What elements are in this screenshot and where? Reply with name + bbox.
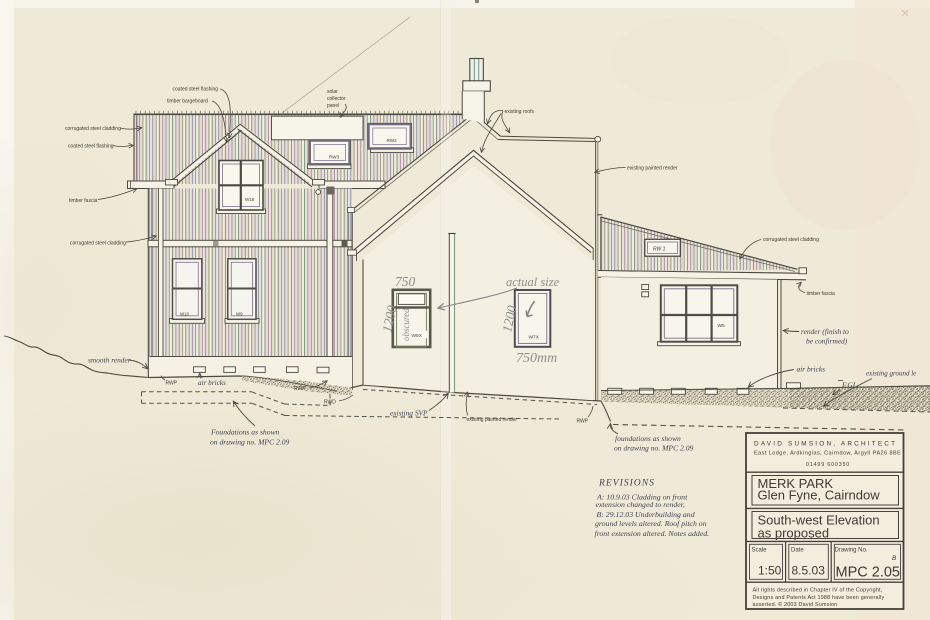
svg-text:RWP: RWP	[294, 386, 306, 392]
svg-text:RWD: RWD	[324, 400, 336, 406]
svg-text:extension changed to render,: extension changed to render,	[596, 500, 685, 509]
svg-text:750mm: 750mm	[516, 351, 557, 366]
svg-text:as proposed: as proposed	[758, 526, 830, 541]
svg-text:01499 600350: 01499 600350	[806, 462, 850, 468]
svg-text:panel: panel	[327, 103, 339, 109]
svg-text:corrugated steel cladding: corrugated steel cladding	[70, 241, 126, 247]
svg-text:existing ground le: existing ground le	[866, 370, 916, 378]
svg-text:W9: W9	[236, 312, 243, 317]
svg-text:RWP: RWP	[577, 419, 589, 425]
svg-text:Scale: Scale	[752, 548, 768, 554]
svg-text:existing SVP: existing SVP	[390, 409, 428, 418]
svg-text:F.GL: F.GL	[841, 381, 857, 390]
svg-text:Date: Date	[791, 548, 804, 554]
svg-text:RW3: RW3	[329, 155, 340, 160]
svg-text:B: B	[892, 555, 897, 562]
svg-text:coated steel flashing: coated steel flashing	[173, 87, 219, 93]
svg-text:ground levels altered. Roof pi: ground levels altered. Roof pitch on	[595, 519, 707, 528]
svg-text:solar: solar	[327, 89, 338, 95]
svg-text:collector: collector	[327, 96, 346, 102]
svg-text:W18: W18	[245, 197, 255, 202]
svg-text:existing painted render: existing painted render	[627, 166, 678, 172]
svg-text:Drawing No.: Drawing No.	[835, 548, 868, 554]
svg-text:8.5.03: 8.5.03	[792, 564, 826, 578]
svg-text:obscured: obscured	[401, 308, 411, 341]
svg-text:RW2: RW2	[387, 138, 398, 143]
svg-text:asserted. © 2: asserted. © 2003 David Sumsion	[753, 601, 838, 608]
svg-text:B: 29.12.03 Underbuilding and: B: 29.12.03 Underbuilding and	[597, 510, 695, 519]
svg-text:1:50: 1:50	[758, 564, 782, 578]
svg-text:W10: W10	[180, 312, 190, 317]
svg-text:corrugated steel cladding: corrugated steel cladding	[65, 126, 121, 132]
svg-text:MPC 2.05: MPC 2.05	[836, 565, 900, 581]
svg-text:coated steel flashing: coated steel flashing	[68, 144, 114, 150]
svg-text:existing painted render: existing painted render	[467, 417, 518, 423]
svg-text:All rights described in Chapte: All rights described in Chapter IV of th…	[753, 588, 883, 594]
svg-text:W7X: W7X	[529, 335, 540, 341]
svg-text:be confirmed): be confirmed)	[806, 337, 848, 346]
svg-text:RWP: RWP	[166, 381, 178, 387]
svg-text:timber fascia: timber fascia	[807, 291, 836, 297]
svg-text:Glen Fyne, Cairndow: Glen Fyne, Cairndow	[758, 488, 881, 503]
svg-text:Designs and Patents Act 1988 h: Designs and Patents Act 1988 have been g…	[753, 595, 885, 601]
svg-text:front extension altered. Notes: front extension altered. Notes added.	[595, 529, 710, 538]
svg-text:REVISIONS: REVISIONS	[598, 478, 655, 489]
svg-text:actual size: actual size	[506, 275, 560, 289]
svg-text:on drawing no. MPC 2.09: on drawing no. MPC 2.09	[614, 444, 694, 453]
svg-text:East Lodge, Ardkinglas, Cairnd: East Lodge, Ardkinglas, Cairndow, Argyll…	[754, 451, 901, 457]
svg-text:air bricks: air bricks	[198, 379, 226, 387]
svg-text:750: 750	[395, 274, 416, 289]
svg-text:existing roofs: existing roofs	[505, 109, 535, 115]
svg-text:DAVID SUMSION, ARCHITECT: DAVID SUMSION, ARCHITECT	[754, 441, 897, 448]
svg-text:corrugated steel cladding: corrugated steel cladding	[763, 237, 819, 243]
svg-text:timber fascia: timber fascia	[69, 198, 98, 204]
svg-text:smooth render: smooth render	[88, 356, 131, 365]
svg-text:foundations as shown: foundations as shown	[615, 434, 681, 443]
svg-text:timber bargeboard: timber bargeboard	[167, 99, 208, 105]
svg-text:on drawing no. MPC 2.09: on drawing no. MPC 2.09	[210, 438, 290, 447]
svg-text:air bricks: air bricks	[797, 365, 826, 374]
svg-text:W8X: W8X	[412, 333, 423, 339]
svg-text:W5: W5	[718, 323, 726, 329]
svg-text:RW 1: RW 1	[653, 247, 666, 253]
svg-text:render (finish to: render (finish to	[801, 327, 849, 336]
svg-text:Foundations as shown: Foundations as shown	[210, 428, 280, 437]
